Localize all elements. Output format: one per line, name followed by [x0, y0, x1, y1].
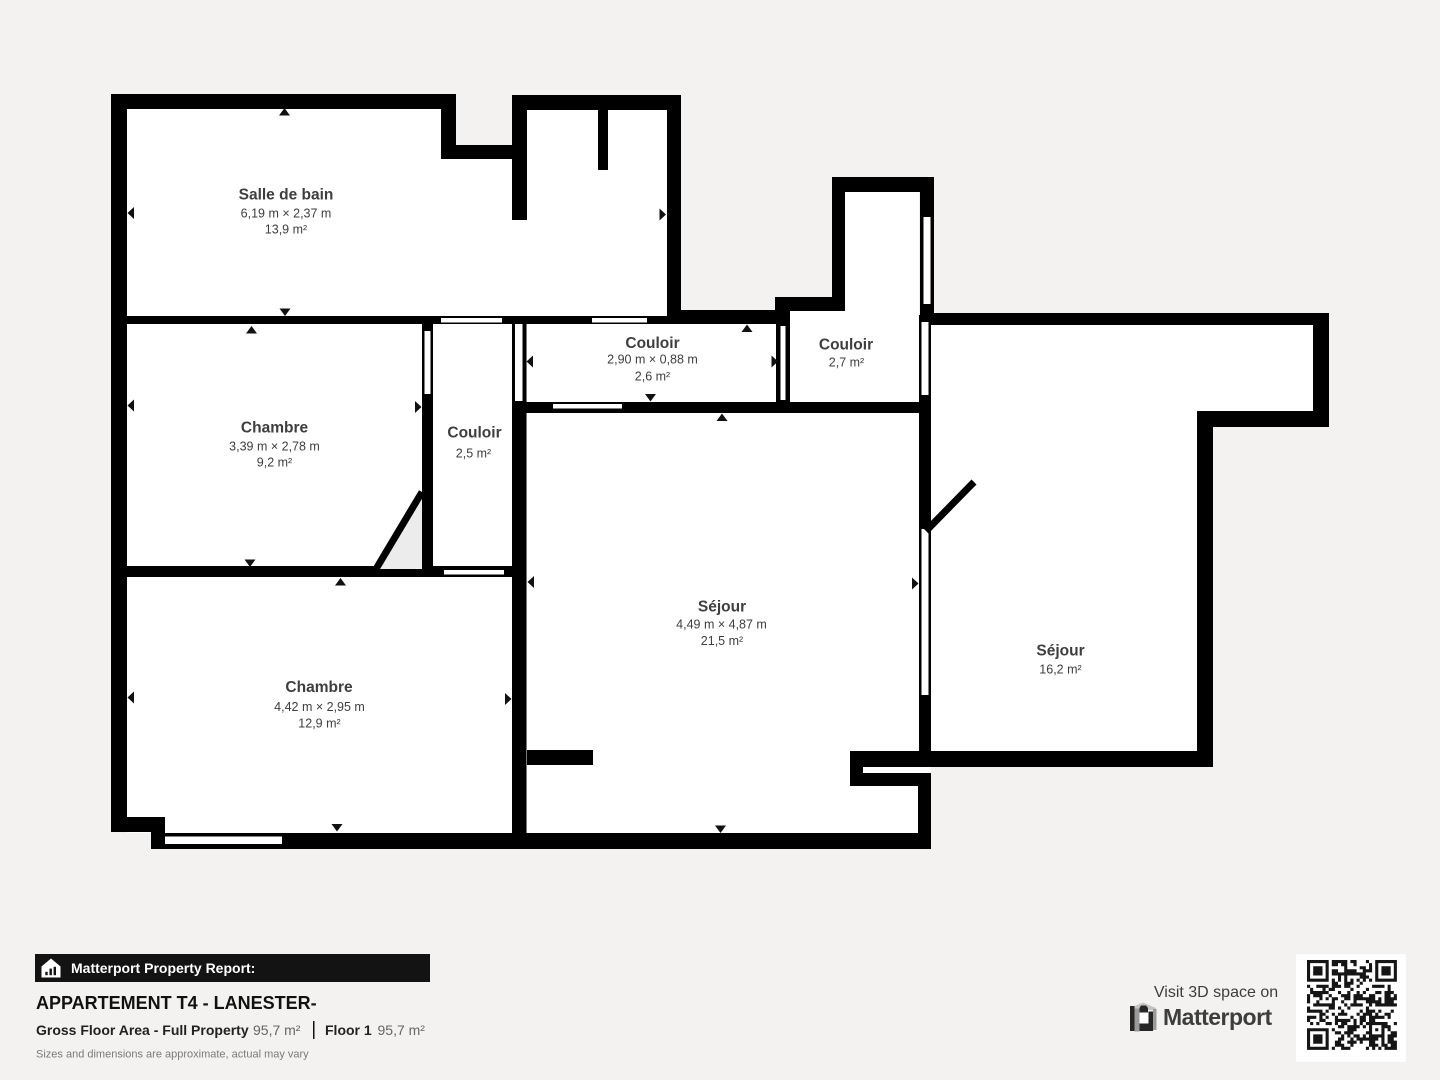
svg-text:2,5 m²: 2,5 m²	[456, 447, 491, 461]
svg-text:Chambre: Chambre	[241, 420, 309, 437]
svg-text:Séjour: Séjour	[1036, 643, 1084, 660]
svg-text:6,19 m × 2,37 m: 6,19 m × 2,37 m	[241, 207, 332, 221]
svg-text:Chambre: Chambre	[285, 679, 353, 696]
svg-text:Visit 3D space on: Visit 3D space on	[1154, 984, 1278, 1001]
svg-text:2,7 m²: 2,7 m²	[829, 356, 864, 370]
svg-text:3,39 m × 2,78 m: 3,39 m × 2,78 m	[229, 440, 320, 454]
svg-text:4,49 m × 4,87 m: 4,49 m × 4,87 m	[676, 618, 767, 632]
svg-text:Couloir: Couloir	[819, 337, 873, 354]
svg-text:4,42 m × 2,95 m: 4,42 m × 2,95 m	[274, 700, 365, 714]
svg-text:APPARTEMENT T4 - LANESTER-: APPARTEMENT T4 - LANESTER-	[36, 993, 317, 1013]
svg-text:95,7 m²: 95,7 m²	[378, 1022, 426, 1038]
svg-text:21,5 m²: 21,5 m²	[701, 634, 743, 648]
svg-text:13,9 m²: 13,9 m²	[265, 223, 307, 237]
svg-text:9,2 m²: 9,2 m²	[257, 456, 292, 470]
svg-text:Salle de bain: Salle de bain	[239, 187, 334, 204]
svg-text:2,90 m × 0,88 m: 2,90 m × 0,88 m	[607, 353, 698, 367]
svg-text:Sizes and dimensions are appro: Sizes and dimensions are approximate, ac…	[36, 1049, 309, 1061]
svg-text:Matterport: Matterport	[1163, 1004, 1273, 1030]
svg-text:Matterport Property Report:: Matterport Property Report:	[71, 960, 255, 976]
svg-text:16,2 m²: 16,2 m²	[1039, 663, 1081, 677]
svg-text:2,6 m²: 2,6 m²	[635, 370, 670, 384]
svg-text:12,9 m²: 12,9 m²	[298, 717, 340, 731]
svg-text:Couloir: Couloir	[447, 425, 501, 442]
svg-text:Gross Floor Area - Full Proper: Gross Floor Area - Full Property	[36, 1022, 249, 1038]
svg-text:Floor 1: Floor 1	[325, 1022, 372, 1038]
svg-text:Séjour: Séjour	[698, 599, 746, 616]
svg-text:95,7 m²: 95,7 m²	[253, 1022, 301, 1038]
svg-text:Couloir: Couloir	[625, 335, 679, 352]
